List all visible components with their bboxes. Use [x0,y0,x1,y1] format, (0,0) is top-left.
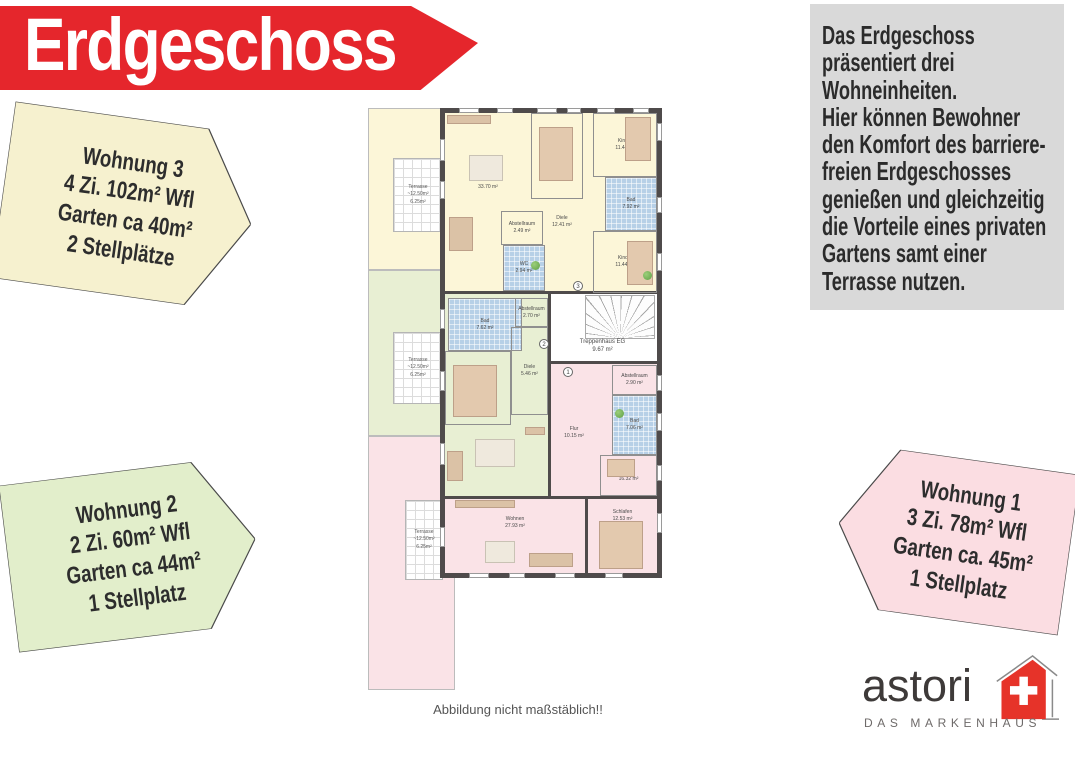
room-area: 27.93 m² [505,523,525,530]
terrace-wohnung-3: Terrasse ~12.50m² 6.25m² [393,158,443,232]
window [469,573,489,578]
window [657,123,662,141]
terrace-label: Terrasse ~12.50m² 6.25m² [407,357,428,380]
badge-wohnung-2-text: Wohnung 2 2 Zi. 60m² Wfl Garten ca 44m² … [26,459,238,649]
room-area: 10.15 m² [564,433,584,440]
room-label: Wohnen [506,516,525,523]
room-label: Schlafen [613,509,632,516]
room-treppenhaus: Treppenhaus EG 9.67 m² [548,331,657,361]
terrace-wohnung-2: Terrasse ~12.50m² 6.25m² [393,332,443,404]
room-w3-bad: Bad 7.92 m² [605,177,657,231]
furniture-kitchen [447,115,491,124]
furniture-sofa [447,451,463,481]
room-area: 2.90 m² [626,380,643,387]
room-label: Bad [627,197,636,204]
window [440,139,445,161]
furniture-sofa [449,217,473,251]
furniture-sofa [529,553,573,567]
window [597,108,615,113]
room-w1-abstellraum: Abstellraum 2.90 m² [612,365,657,395]
window [537,108,557,113]
plan-caption: Abbildung nicht maßstäblich!! [368,702,668,717]
room-w1-bad: Bad 7.06 m² [612,395,657,455]
room-label: Diele [556,215,567,222]
room-label: Abstellraum [509,221,535,228]
room-area: 12.41 m² [552,222,572,229]
terrace-label: Terrasse ~12.50m² 6.25m² [413,529,434,552]
wall [548,291,551,498]
room-w3-abstellraum: Abstellraum 2.49 m² [501,211,543,245]
window [657,375,662,391]
room-label: WC [520,261,528,268]
marker-apartment-3: 3 [573,281,583,291]
window [657,413,662,431]
room-w2-abstellraum: Abstellraum 2.70 m² [515,298,548,327]
page-title: Erdgeschoss [24,2,396,87]
room-area: 33.70 m² [478,184,498,191]
description-box: Das Erdgeschoss präsentiert drei Wohnein… [810,4,1064,310]
window [657,513,662,533]
window [633,108,649,113]
description-text: Das Erdgeschoss präsentiert drei Wohnein… [822,22,1075,295]
badge-wohnung-1: Wohnung 1 3 Zi. 78m² Wfl Garten ca. 45m²… [828,443,1075,636]
window [440,181,445,199]
window [440,443,445,465]
badge-wohnung-1-text: Wohnung 1 3 Zi. 78m² Wfl Garten ca. 45m²… [853,446,1055,632]
astori-logo: astori DAS MARKENHAUS [862,652,1074,744]
room-area: 2.94 m² [516,268,533,275]
window [440,371,445,391]
plant-icon [531,261,540,270]
terrace-label: Terrasse ~12.50m² 6.25m² [407,184,428,207]
furniture-kitchen [525,427,545,435]
window [567,108,581,113]
badge-wohnung-3: Wohnung 3 4 Zi. 102m² Wfl Garten ca 40m²… [0,101,263,312]
title-banner-arrow: Erdgeschoss [0,6,478,90]
furniture-bed [607,459,635,477]
furniture-table [469,155,503,181]
furniture-kitchen [455,500,515,508]
window [459,108,479,113]
floor-plan: Terrasse ~12.50m² 6.25m² Terrasse ~12.50… [368,100,668,712]
room-area: 5.46 m² [521,371,538,378]
room-label: Abstellraum [621,373,647,380]
room-area: 2.49 m² [514,228,531,235]
window [440,309,445,329]
furniture-bed [625,117,651,161]
room-label: Bad [630,418,639,425]
furniture-bed [453,365,497,417]
furniture-table [475,439,515,467]
room-w1-wohnen: Wohnen 27.93 m² [465,508,565,538]
room-label: Bad [481,318,490,325]
furniture-bed [599,521,643,569]
window [555,573,575,578]
room-label: Flur [570,426,579,433]
room-area: 7.62 m² [477,325,494,332]
room-label: Treppenhaus EG [580,338,625,346]
terrace-wohnung-1: Terrasse ~12.50m² 6.25m² [405,500,443,580]
window [657,253,662,271]
house-icon [993,652,1059,724]
building-outline: Wohnen 33.70 m² Schlafen 15.08 m² Kind 1… [440,108,662,578]
marker-apartment-2: 2 [539,339,549,349]
badge-wohnung-2: Wohnung 2 2 Zi. 60m² Wfl Garten ca 44m² … [0,456,265,653]
wall [548,361,657,364]
plant-icon [643,271,652,280]
badge-wohnung-3-text: Wohnung 3 4 Zi. 102m² Wfl Garten ca 40m²… [18,105,236,308]
logo-tagline: DAS MARKENHAUS [864,716,1041,730]
plant-icon [615,409,624,418]
room-label: Diele [524,364,535,371]
window [440,527,445,547]
room-area: 9.67 m² [592,346,612,354]
window [497,108,513,113]
room-w1-flur: Flur 10.15 m² [548,413,600,453]
wall [445,496,657,499]
furniture-table [485,541,515,563]
room-area: 2.70 m² [523,313,540,320]
room-label: Abstellraum [518,306,544,313]
room-area: 7.06 m² [626,425,643,432]
furniture-bed [539,127,573,181]
logo-wordmark: astori [862,660,972,712]
window [509,573,525,578]
marker-apartment-1: 1 [563,367,573,377]
window [605,573,623,578]
window [657,465,662,481]
window [657,197,662,213]
room-area: 7.92 m² [623,204,640,211]
